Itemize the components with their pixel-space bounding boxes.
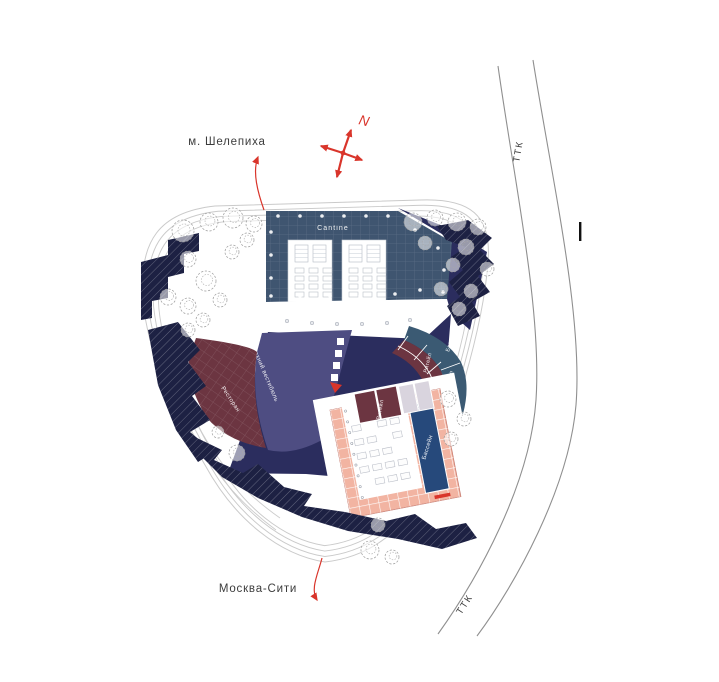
table-symbol [323,268,332,273]
table-symbol [363,276,372,281]
table-symbol [349,268,358,273]
tree [457,412,471,426]
table-symbol [377,292,386,297]
ttk-road: ТТК ТТК [438,60,581,636]
column-dot [298,294,302,298]
table-symbol [377,276,386,281]
tree [240,233,254,247]
tree [213,293,227,307]
tree [385,550,399,564]
compass-arm-w [321,146,343,153]
tree [212,426,224,438]
column-dot [442,268,446,272]
tree [196,313,210,327]
tree [223,208,243,228]
compass-arm-s [337,153,343,177]
core-square [331,374,338,381]
column-dot [310,321,314,325]
tree [434,282,448,296]
tree [196,271,216,291]
compass-center [341,151,346,156]
city-direction-arrow-icon [314,558,322,600]
column-dot [360,322,364,326]
column-dot [269,276,273,280]
compass-arm-e [343,153,362,160]
table-symbol [295,268,304,273]
table-symbol [323,284,332,289]
tree [371,518,385,532]
north-letter: N [357,111,372,129]
column-dot [269,230,273,234]
tree [180,298,196,314]
cantine-building: Cantine [266,211,452,302]
table-symbol [349,284,358,289]
column-dot [298,214,302,218]
column-dot [342,214,346,218]
metro-station-label: м. Шелепиха [188,136,265,148]
tree [160,289,176,305]
column-dot [276,214,280,218]
tree [229,445,245,461]
table-symbol [349,292,358,297]
core-square [337,338,344,345]
metro-direction-arrow-icon [256,157,264,210]
tree [361,541,379,559]
column-dot [436,246,440,250]
column-dot [364,214,368,218]
tree [181,323,195,337]
tree [172,220,194,242]
tree [470,219,486,235]
tree [480,262,494,276]
tree [427,210,443,226]
table-symbol [377,284,386,289]
column-dot [408,318,412,322]
tree [458,239,474,255]
table-symbol [295,276,304,281]
table-symbol [349,276,358,281]
table-symbol [309,292,318,297]
ttk-road-outer-line [477,60,577,636]
tree [448,213,466,231]
ttk-label-top: ТТК [511,140,526,163]
table-symbol [377,268,386,273]
column-dot [335,322,339,326]
column-dot [358,294,362,298]
tree [180,251,196,267]
restaurant-wedge: Ресторан [189,338,266,448]
tree [452,302,466,316]
compass-arm-n [343,130,351,153]
column-dot [386,214,390,218]
column-dot [320,214,324,218]
table-symbol [309,268,318,273]
column-dot [269,294,273,298]
table-symbol [363,284,372,289]
table-symbol [323,276,332,281]
tree [225,245,239,259]
moscow-city-label: Москва-Сити [219,583,297,595]
table-symbol [295,284,304,289]
table-symbol [309,284,318,289]
table-symbol [309,276,318,281]
column-dot [393,292,397,296]
ttk-label-bottom: ТТК [454,593,475,617]
tree [440,391,456,407]
column-dot [385,321,389,325]
tree [464,284,478,298]
tree [418,236,432,250]
column-dot [285,319,289,323]
tree [404,213,422,231]
site-plan-page: Cantine Верхний вестибюль Ресторан Бар Р… [0,0,719,682]
tree [200,213,218,231]
north-compass-icon [321,130,362,177]
table-symbol [363,268,372,273]
core-square [333,362,340,369]
tree [446,258,460,272]
column-dot [418,288,422,292]
table-symbol [363,292,372,297]
column-dot [269,253,273,257]
column-dot [328,294,332,298]
site-plan-canvas: Cantine Верхний вестибюль Ресторан Бар Р… [0,0,719,682]
core-square [335,350,342,357]
tree [246,216,262,232]
tree [444,432,458,446]
cantine-label: Cantine [317,225,349,232]
road-tick-mark [579,222,581,241]
